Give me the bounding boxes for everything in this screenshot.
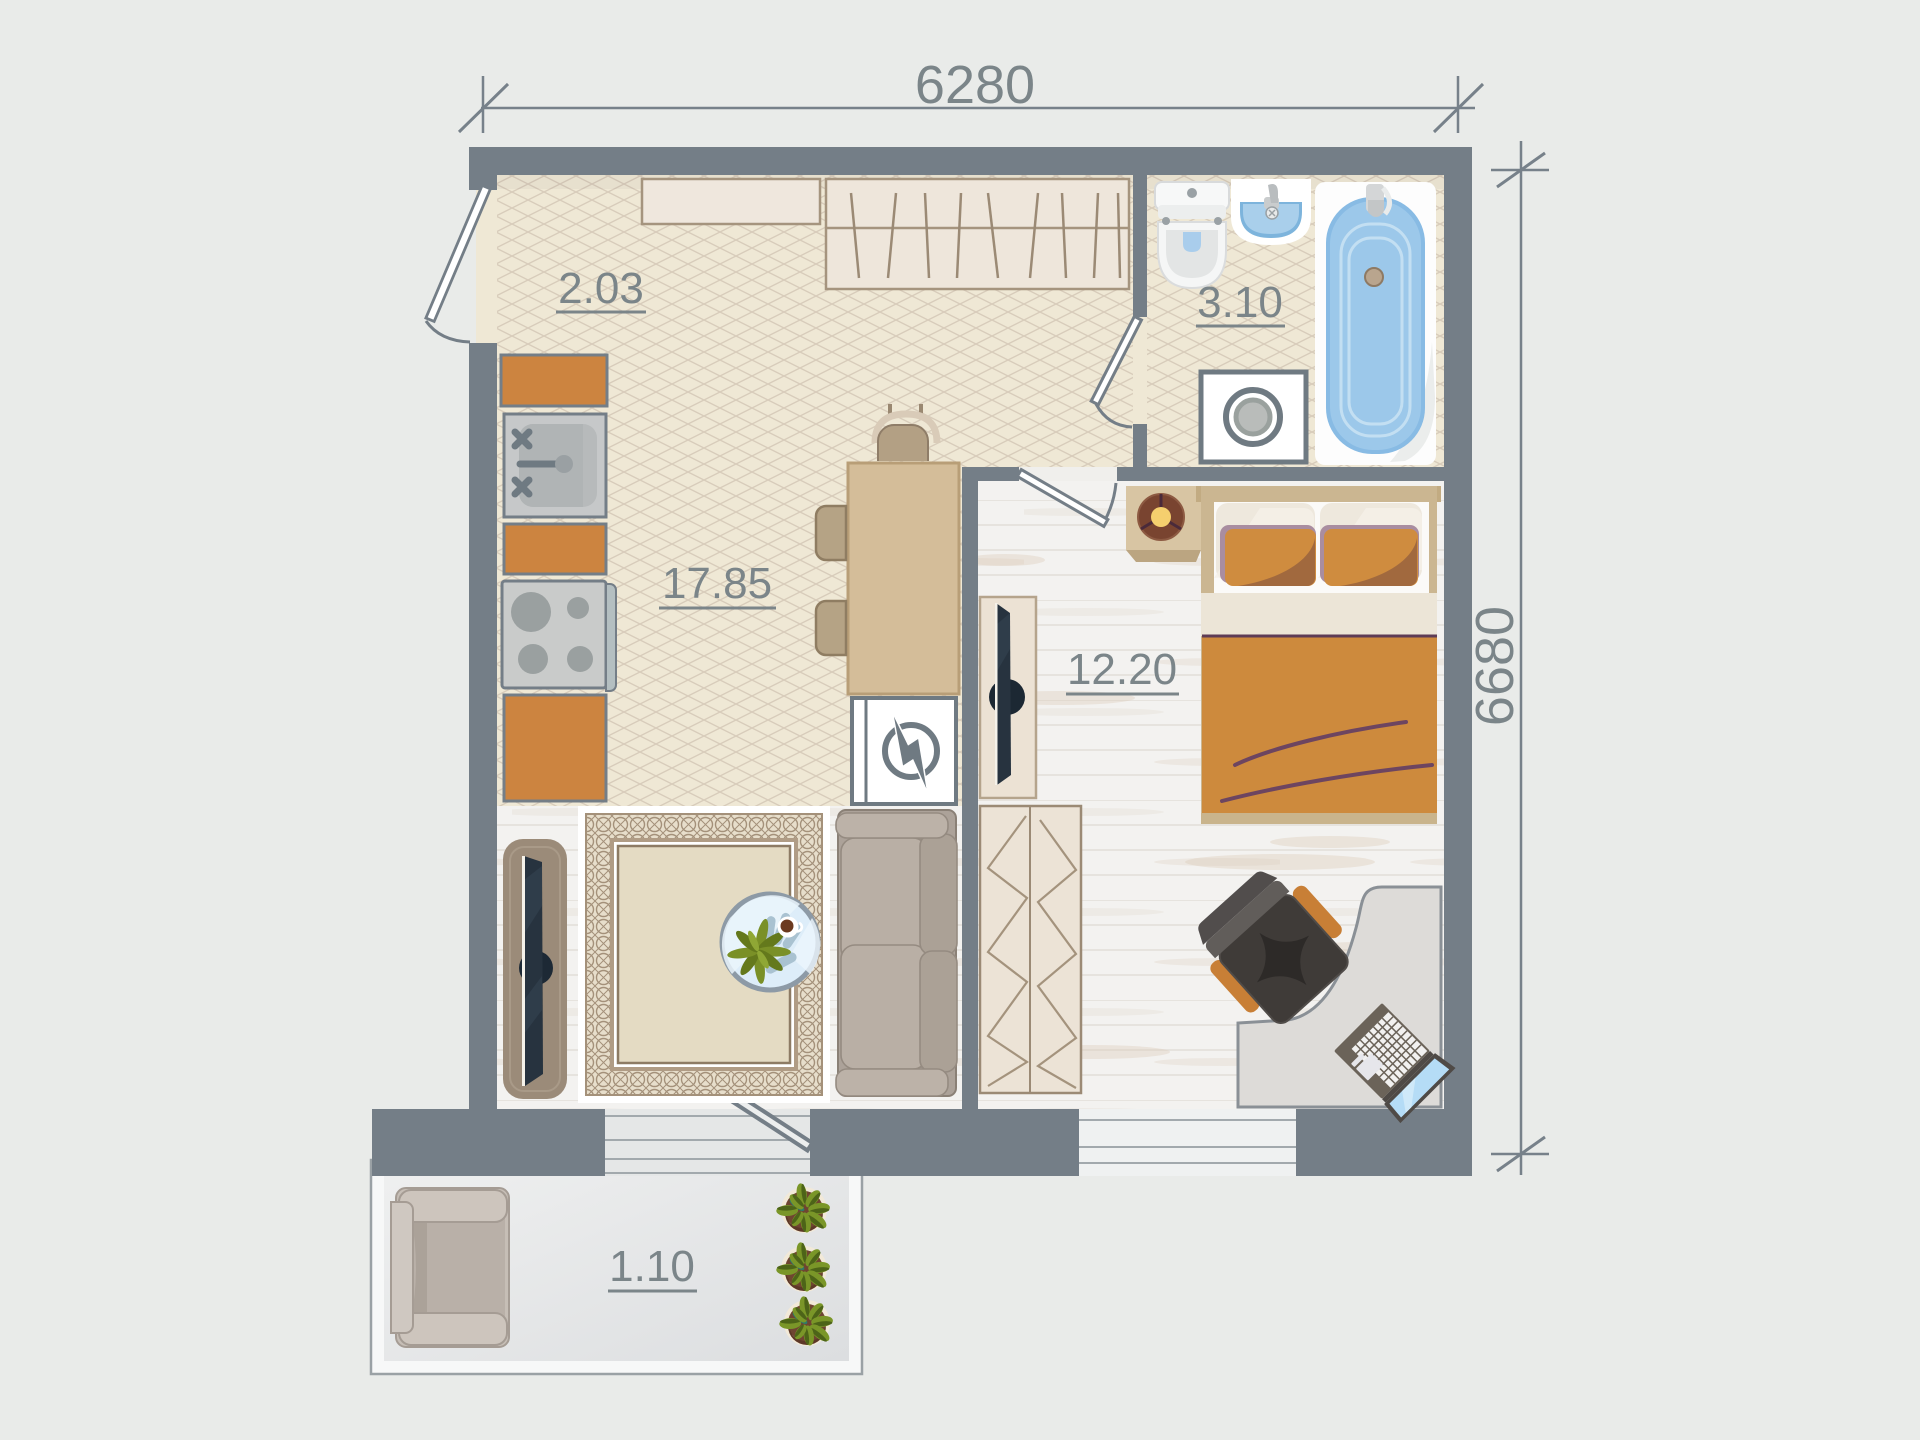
svg-text:12.20: 12.20 (1067, 645, 1177, 694)
svg-text:3.10: 3.10 (1197, 278, 1283, 327)
svg-text:2.03: 2.03 (558, 264, 644, 313)
svg-text:1.10: 1.10 (609, 1242, 695, 1291)
svg-text:6280: 6280 (915, 55, 1035, 115)
svg-text:17.85: 17.85 (662, 559, 772, 608)
svg-text:6680: 6680 (1465, 606, 1525, 726)
